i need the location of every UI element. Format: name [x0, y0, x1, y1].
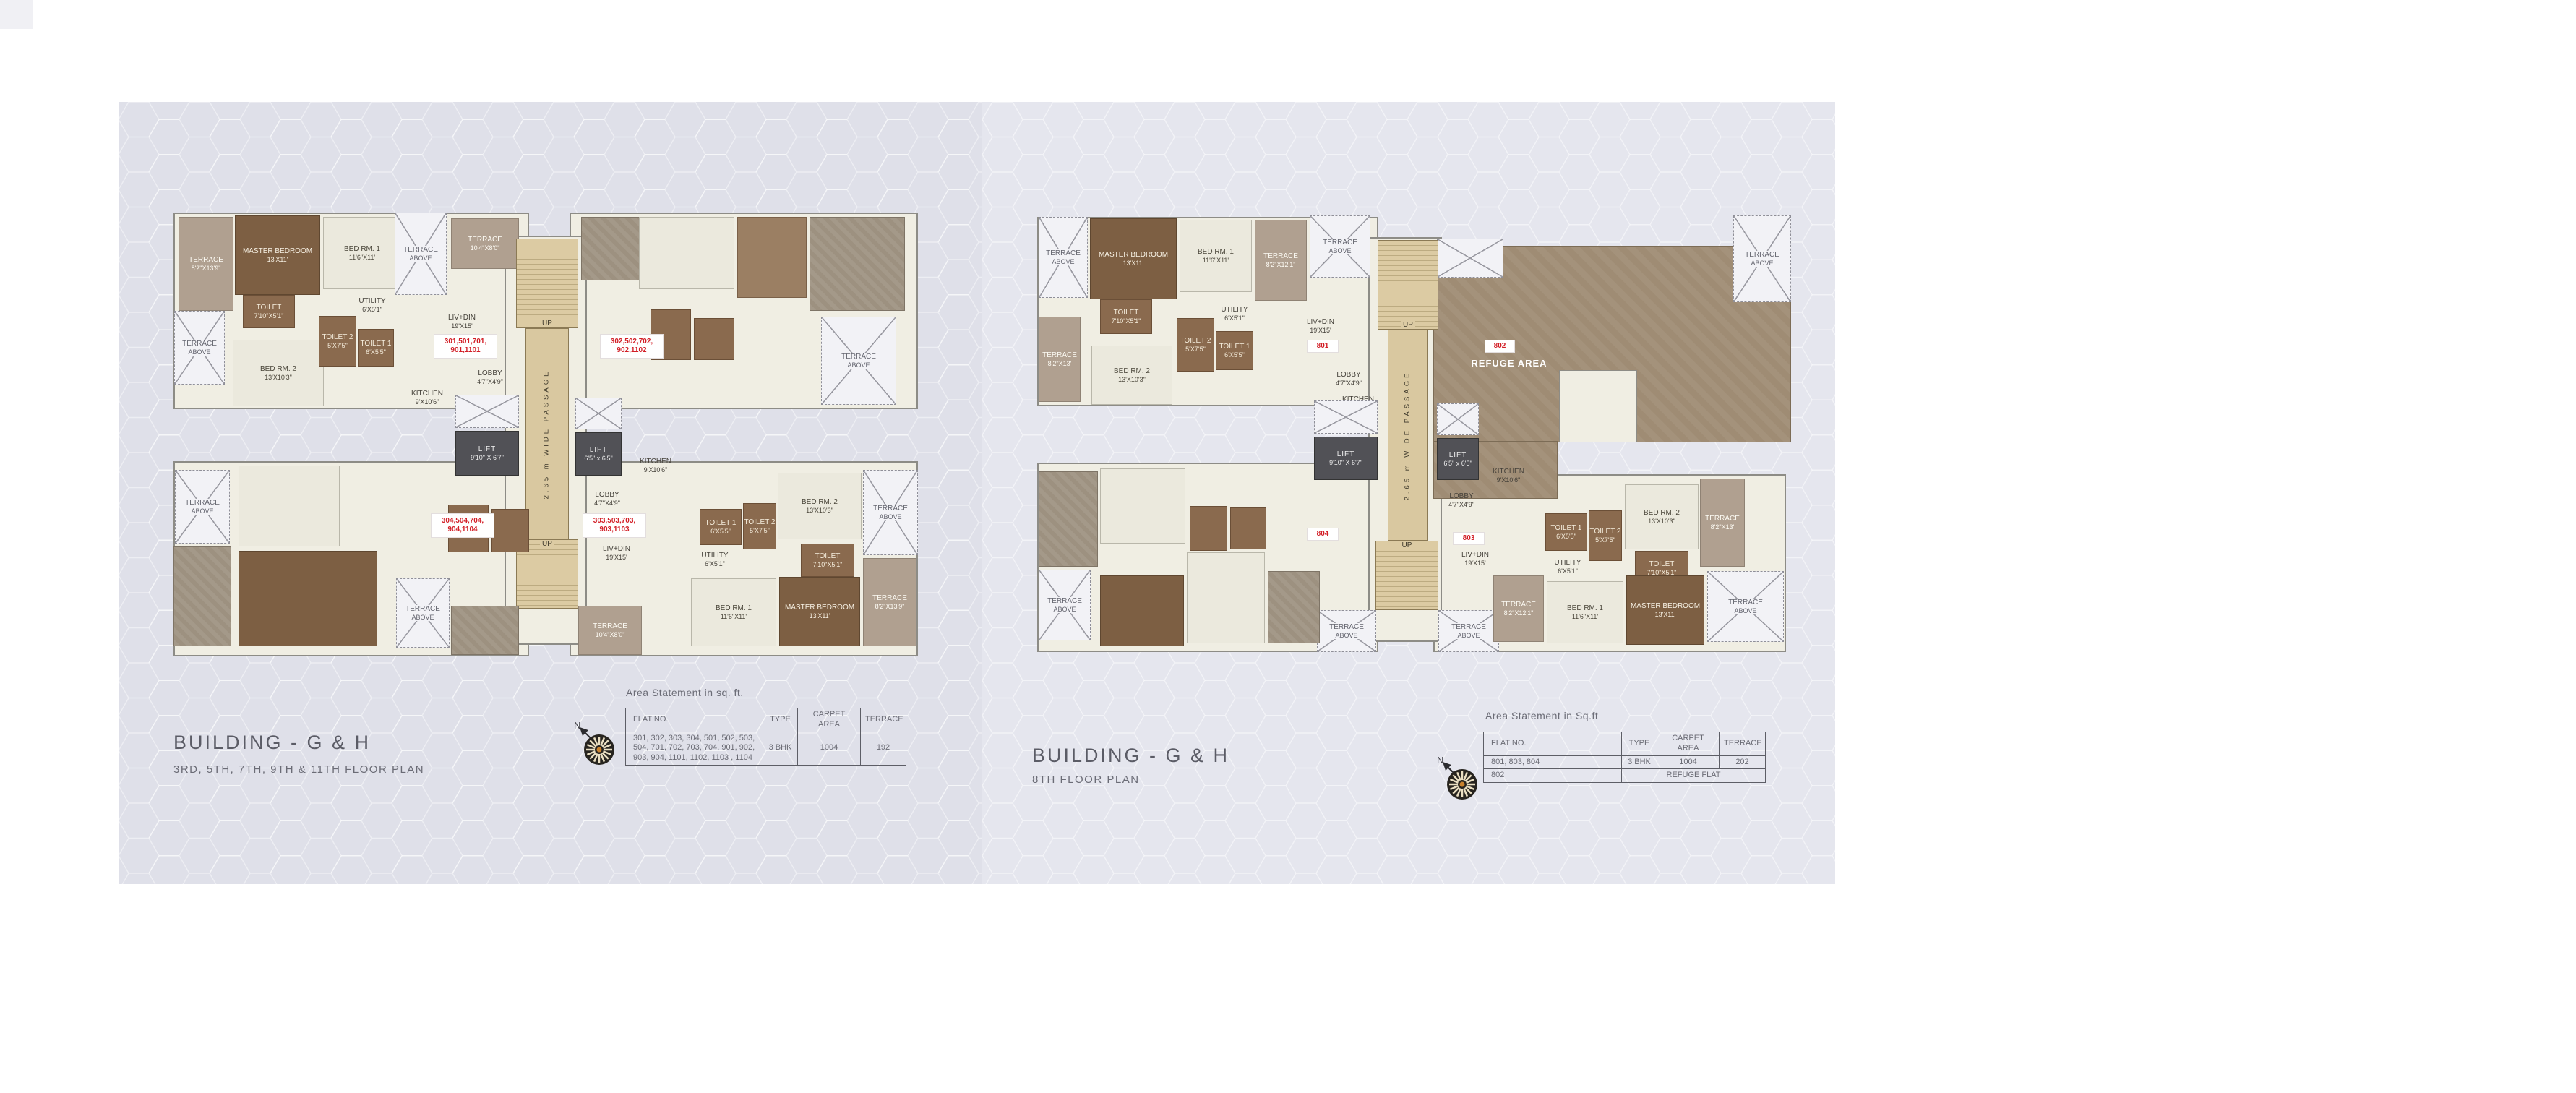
room-text: ABOVE	[1749, 260, 1774, 267]
room-text: UTILITY	[1221, 306, 1248, 314]
toilet: TOILET 16'X5'5"	[700, 509, 742, 545]
room-text: 11'6"X11'	[349, 254, 375, 261]
bedroom	[737, 217, 807, 298]
table-cell: 3 BHK	[1622, 755, 1657, 769]
room-text: 4'7"X4'9"	[1448, 501, 1474, 508]
terrace: TERRACE8'2"X13'	[1700, 479, 1745, 567]
room-text: 13'X11'	[267, 256, 288, 263]
room-text: ABOVE	[1327, 247, 1352, 254]
flat-number-label: 302,502,702,902,1102	[600, 334, 664, 359]
room-text: BED RM. 2	[1644, 509, 1680, 518]
refuge-area-label: REFUGE AREA	[1459, 356, 1560, 372]
room-text: TERRACE	[184, 499, 221, 507]
flat-number-label: 303,503,703,903,1103	[583, 513, 646, 538]
room: BED RM. 213'X10'3"	[233, 340, 324, 406]
room-text: 19'X15'	[1310, 327, 1331, 334]
room-text: TOILET 1	[1219, 343, 1250, 351]
room: BED RM. 111'6"X11'	[323, 217, 401, 289]
lift: LIFT6'5" x 6'5"	[1437, 438, 1479, 480]
room-text: TERRACE	[189, 256, 223, 265]
room-text: 6'X5'1"	[705, 560, 725, 567]
room: BED RM. 213'X10'3"	[1625, 484, 1699, 549]
room-label: KITCHEN9'X10'6"	[1486, 464, 1531, 487]
room-text: TERRACE	[1321, 239, 1359, 247]
terrace	[1268, 571, 1320, 643]
room-label: UTILITY6'X5'1"	[1545, 555, 1590, 578]
terrace	[581, 217, 640, 280]
room-text: 8'2"X13'	[1711, 523, 1735, 531]
terrace-above-marker: TERRACEABOVE	[1707, 571, 1784, 642]
top-left-corner-patch	[0, 0, 33, 29]
table-header: TYPE	[763, 708, 798, 732]
room-text: KITCHEN	[640, 458, 671, 466]
terrace-above-marker: TERRACEABOVE	[821, 317, 896, 405]
room-text: 302,502,702,	[611, 338, 653, 347]
terrace-above-marker: TERRACEABOVE	[1310, 215, 1370, 278]
bedroom	[239, 551, 377, 646]
room-text: TOILET 1	[705, 519, 737, 528]
room-text: TOILET 2	[1590, 528, 1621, 536]
toilet: TOILET 25'X7'5"	[1589, 510, 1622, 561]
room-text: REFUGE AREA	[1471, 359, 1547, 369]
building-title-right: BUILDING - G & H	[1032, 745, 1229, 767]
room-text: MASTER BEDROOM	[1631, 602, 1700, 611]
room-text: 9'X10'6"	[416, 398, 439, 406]
terrace	[810, 217, 905, 311]
room-label: UTILITY6'X5'1"	[1211, 302, 1258, 325]
terrace-above-marker	[575, 398, 622, 429]
room-text: 10'4"X8'0"	[596, 631, 625, 638]
compass-north-label: N	[574, 720, 580, 731]
room-text: 8'2"X13'	[1048, 360, 1072, 367]
room-text: TERRACE	[1727, 599, 1764, 607]
room: BED RM. 213'X10'3"	[778, 473, 862, 539]
area-statement-caption-right: Area Statement in Sq.ft	[1485, 710, 1598, 721]
terrace: TERRACE8'2"X12'1"	[1493, 575, 1544, 642]
room: BED RM. 111'6"X11'	[1547, 581, 1623, 643]
toilet: TOILET 25'X7'5"	[1177, 318, 1214, 372]
table-cell: REFUGE FLAT	[1622, 769, 1766, 783]
table-header: TERRACE	[861, 708, 906, 732]
table-row: 801, 803, 8043 BHK1004202	[1484, 755, 1766, 769]
table-row: 301, 302, 303, 304, 501, 502, 503, 504, …	[626, 732, 906, 765]
room-text: LOBBY	[478, 369, 502, 378]
toilet: TOILET 25'X7'5"	[319, 316, 356, 367]
room: BED RM. 111'6"X11'	[1180, 220, 1252, 292]
room-text: 6'5" x 6'5"	[584, 455, 612, 462]
terrace: TERRACE10'4"X8'0"	[451, 218, 519, 269]
room-text: 6'X5'5"	[1556, 533, 1576, 540]
room-text: 6'X5'5"	[710, 528, 731, 535]
room	[1187, 552, 1265, 643]
table-cell: 801, 803, 804	[1484, 755, 1622, 769]
room-text: BED RM. 2	[802, 498, 838, 507]
terrace	[1039, 471, 1098, 567]
room-text: BED RM. 1	[344, 245, 380, 254]
flat-number-label: 804	[1307, 528, 1339, 541]
staircase: UP	[1378, 240, 1438, 330]
toilet: TOILET 16'X5'5"	[1545, 513, 1587, 551]
terrace: TERRACE8'2"X13'9"	[179, 217, 233, 311]
lift: LIFT9'10" X 6'7"	[1314, 437, 1378, 480]
table-header: TERRACE	[1720, 732, 1766, 756]
flat-number-label: 301,501,701,901,1101	[434, 334, 497, 359]
floor-subtitle-right: 8TH FLOOR PLAN	[1032, 773, 1140, 786]
room: BED RM. 111'6"X11'	[691, 578, 776, 646]
flat-number-label: 801	[1307, 340, 1339, 353]
room-label: LOBBY4'7"X4'9"	[587, 489, 627, 509]
room-text: TOILET	[1114, 309, 1139, 317]
room-text: BED RM. 1	[1198, 248, 1234, 257]
room-text: LIV+DIN	[1307, 318, 1334, 327]
room-text: 6'X5'1"	[362, 306, 382, 313]
staircase: UP	[1375, 541, 1438, 610]
room-text: LIFT	[1337, 450, 1355, 459]
bedroom	[1100, 575, 1184, 646]
toilet: TOILET 16'X5'5"	[358, 329, 394, 367]
room-label: LIV+DIN19'X15'	[594, 542, 639, 564]
passage: 2.65 m WIDE PASSAGE	[1388, 330, 1428, 541]
room-text: 902,1102	[617, 346, 646, 356]
room-text: 10'4"X8'0"	[471, 244, 500, 252]
room-text: 19'X15'	[606, 554, 627, 561]
compass-icon: N	[1435, 752, 1483, 804]
room-text: 6'X5'5"	[366, 348, 386, 356]
room-text: 2.65 m WIDE PASSAGE	[1404, 370, 1412, 500]
bedroom: MASTER BEDROOM13'X11'	[235, 215, 320, 295]
room-text: MASTER BEDROOM	[785, 604, 854, 612]
toilet	[1230, 507, 1266, 549]
room-text: LIFT	[590, 446, 608, 455]
room-label: KITCHEN9'X10'6"	[405, 386, 450, 409]
room	[239, 466, 340, 546]
terrace-above-marker: TERRACEABOVE	[1039, 217, 1088, 298]
room-text: 5'X7'5"	[1595, 536, 1615, 544]
area-statement-table-left: FLAT NO.TYPECARPET AREATERRACE301, 302, …	[625, 708, 906, 766]
room-text: 5'X7'5"	[750, 527, 770, 534]
room-text: 7'10"X5'1"	[813, 561, 843, 568]
toilet: TOILET7'10"X5'1"	[1100, 299, 1152, 334]
terrace: TERRACE8'2"X12'1"	[1255, 220, 1307, 301]
table-cell: 802	[1484, 769, 1622, 783]
room-text: TERRACE	[468, 236, 502, 244]
area-statement-table-right: FLAT NO.TYPECARPET AREATERRACE801, 803, …	[1483, 732, 1766, 783]
room-text: ABOVE	[186, 348, 212, 356]
terrace-above-marker	[1437, 239, 1503, 278]
room-text: 904,1104	[447, 526, 477, 535]
room-text: TERRACE	[1263, 252, 1298, 261]
toilet: TOILET7'10"X5'1"	[243, 295, 295, 328]
room-text: TOILET 1	[1551, 524, 1582, 533]
table-header: TYPE	[1622, 732, 1657, 756]
room-text: ABOVE	[1334, 632, 1359, 639]
room-text: 9'X10'6"	[644, 466, 668, 473]
toilet	[1190, 506, 1227, 551]
room-text: ABOVE	[408, 254, 433, 262]
room-text: TERRACE	[1046, 597, 1083, 606]
room-text: TOILET	[815, 552, 841, 561]
room-text: UP	[1400, 541, 1414, 550]
room-text: 13'X10'3"	[1118, 376, 1146, 383]
building-title-left: BUILDING - G & H	[173, 732, 371, 754]
room-text: 9'X10'6"	[1497, 476, 1521, 484]
room-text: 6'X5'1"	[1224, 314, 1245, 322]
room-text: 4'7"X4'9"	[477, 378, 503, 385]
room-text: 13'X10'3"	[1648, 518, 1675, 525]
room-label: UTILITY6'X5'1"	[348, 293, 396, 317]
room: BED RM. 213'X10'3"	[1091, 346, 1172, 405]
room-text: LIV+DIN	[603, 545, 630, 554]
terrace-above-marker: TERRACEABOVE	[395, 213, 447, 295]
room-text: 7'10"X5'1"	[254, 312, 284, 320]
room-text: 301,501,701,	[445, 338, 486, 347]
room-text: KITCHEN	[1493, 468, 1524, 476]
flat-number-label: 304,504,704,904,1104	[431, 513, 494, 538]
room-text: TOILET	[257, 304, 282, 312]
room-text: LOBBY	[595, 491, 619, 500]
room-text: 11'6"X11'	[1572, 613, 1598, 620]
terrace-above-marker	[1437, 403, 1479, 435]
room-text: 11'6"X11'	[721, 613, 747, 620]
room-text: TERRACE	[1328, 623, 1365, 632]
toilet: TOILET 16'X5'5"	[1216, 331, 1253, 370]
terrace-above-marker: TERRACEABOVE	[1039, 570, 1091, 640]
room-label: LIV+DIN19'X15'	[439, 311, 484, 333]
room-text: 6'5" x 6'5"	[1443, 460, 1472, 467]
toilet	[491, 509, 529, 552]
bedroom: MASTER BEDROOM13'X11'	[1626, 575, 1704, 645]
room-text: TERRACE	[593, 622, 627, 631]
table-row: 802REFUGE FLAT	[1484, 769, 1766, 783]
room-text: ABOVE	[1052, 606, 1077, 613]
room-text: 802	[1494, 342, 1506, 351]
room-text: TERRACE	[872, 505, 909, 513]
room-text: TERRACE	[1450, 623, 1487, 632]
compass-icon: N	[572, 717, 620, 769]
room-text: UP	[1401, 321, 1415, 330]
room-text: ABOVE	[877, 513, 903, 520]
room-text: TERRACE	[840, 353, 877, 361]
lift: LIFT6'5" x 6'5"	[575, 432, 622, 476]
room-label: KITCHEN9'X10'6"	[633, 454, 678, 477]
flat-number-label: 803	[1453, 532, 1485, 545]
room-text: 803	[1463, 534, 1475, 544]
room-text: 19'X15'	[1464, 560, 1485, 567]
terrace-above-marker: TERRACEABOVE	[1317, 610, 1376, 652]
terrace-above-marker: TERRACEABOVE	[174, 311, 225, 385]
room-text: MASTER BEDROOM	[1099, 251, 1168, 260]
room-text: 6'X5'1"	[1558, 567, 1578, 575]
room-text: BED RM. 1	[1567, 604, 1603, 613]
room-text: 2.65 m WIDE PASSAGE	[544, 369, 551, 499]
table-header: CARPET AREA	[1657, 732, 1720, 756]
table-cell: 1004	[798, 732, 861, 765]
room-text: TERRACE	[872, 594, 907, 603]
terrace-above-marker: TERRACEABOVE	[1438, 610, 1499, 652]
room-text: ABOVE	[1050, 258, 1076, 265]
terrace: TERRACE8'2"X13'9"	[863, 558, 916, 646]
toilet	[694, 318, 734, 360]
room-text: UTILITY	[1554, 559, 1581, 567]
passage: 2.65 m WIDE PASSAGE	[525, 328, 569, 539]
terrace: TERRACE8'2"X13'	[1039, 317, 1081, 402]
toilet: TOILET 25'X7'5"	[743, 503, 776, 549]
room-text: 13'X10'3"	[265, 374, 292, 381]
room-text: BED RM. 2	[1114, 367, 1150, 376]
room-text: ABOVE	[846, 361, 871, 369]
room-text: 13'X11'	[810, 612, 830, 620]
room-text: UTILITY	[701, 552, 728, 560]
compass-north-label: N	[1437, 755, 1443, 766]
room-text: TOILET	[1649, 560, 1675, 569]
terrace	[451, 606, 519, 655]
room-label: LIV+DIN19'X15'	[1453, 548, 1498, 570]
table-cell: 1004	[1657, 755, 1720, 769]
terrace-above-marker: TERRACEABOVE	[863, 470, 918, 555]
room-text: 9'10" X 6'7"	[1329, 459, 1362, 466]
room-text: TERRACE	[1501, 601, 1536, 609]
room-text: 13'X11'	[1123, 260, 1144, 267]
flat-number-label: 802	[1485, 340, 1515, 353]
room-text: TERRACE	[1743, 251, 1781, 260]
room-text: BED RM. 1	[716, 604, 752, 613]
room-text: 4'7"X4'9"	[1336, 380, 1362, 387]
room-text: 8'2"X12'1"	[1266, 261, 1296, 268]
room-text: TERRACE	[1044, 249, 1082, 258]
terrace: TERRACE10'4"X8'0"	[578, 606, 642, 655]
refuge-cutout	[1559, 370, 1637, 442]
table-header: CARPET AREA	[798, 708, 861, 732]
room-text: 7'10"X5'1"	[1112, 317, 1141, 325]
room-text: UP	[540, 540, 554, 549]
room-text: LOBBY	[1336, 371, 1360, 380]
room-text: 19'X15'	[451, 322, 472, 330]
bedroom: MASTER BEDROOM13'X11'	[779, 577, 860, 646]
toilet: TOILET7'10"X5'1"	[801, 544, 854, 577]
room-text: 303,503,703,	[593, 517, 635, 526]
room-text: LOBBY	[1449, 492, 1473, 501]
room-text: LIV+DIN	[1461, 551, 1489, 560]
room-text: 901,1101	[450, 346, 480, 356]
room-label: LOBBY4'7"X4'9"	[470, 367, 510, 387]
room-text: KITCHEN	[411, 390, 443, 398]
room-text: BED RM. 2	[260, 365, 296, 374]
room-text: 8'2"X13'9"	[192, 265, 221, 272]
room-text: TERRACE	[404, 605, 442, 614]
table-header: FLAT NO.	[1484, 732, 1622, 756]
room-text: ABOVE	[410, 614, 435, 621]
terrace-above-marker: TERRACEABOVE	[396, 578, 450, 648]
terrace-above-marker: TERRACEABOVE	[1733, 215, 1791, 302]
room-text: ABOVE	[189, 507, 215, 515]
room-text: ABOVE	[1456, 632, 1481, 639]
room-text: 9'10" X 6'7"	[471, 454, 504, 461]
area-statement-caption-left: Area Statement in sq. ft.	[626, 687, 744, 698]
room-text: 13'X10'3"	[806, 507, 833, 514]
room-label: LOBBY4'7"X4'9"	[1441, 490, 1482, 510]
room-text: 11'6"X11'	[1203, 257, 1229, 264]
room-text: 4'7"X4'9"	[594, 500, 620, 507]
room-text: LIFT	[1449, 451, 1467, 460]
terrace-above-marker	[1314, 400, 1378, 434]
room-text: TERRACE	[402, 246, 439, 254]
room-text: ABOVE	[1733, 607, 1758, 614]
room-label: UTILITY6'X5'1"	[692, 548, 737, 571]
room-text: TERRACE	[181, 340, 218, 348]
room-text: 13'X11'	[1655, 611, 1676, 618]
room-text: 5'X7'5"	[327, 342, 348, 349]
staircase: UP	[516, 239, 578, 328]
room-text: 304,504,704,	[442, 517, 484, 526]
room-text: 903,1103	[599, 526, 629, 535]
terrace-above-marker: TERRACEABOVE	[175, 470, 230, 544]
room-text: LIV+DIN	[448, 314, 476, 322]
room	[1100, 468, 1185, 544]
terrace	[173, 546, 231, 646]
terrace-above-marker	[455, 395, 519, 428]
room-text: 5'X7'5"	[1185, 346, 1206, 353]
room-text: 8'2"X12'1"	[1504, 609, 1534, 617]
room-text: TOILET 1	[361, 340, 392, 348]
room-text: TERRACE	[1042, 351, 1077, 360]
table-cell: 3 BHK	[763, 732, 798, 765]
room-text: 8'2"X13'9"	[875, 603, 905, 610]
room-text: 804	[1317, 530, 1329, 539]
table-cell: 192	[861, 732, 906, 765]
room-text: LIFT	[478, 445, 497, 454]
room-label: LIV+DIN19'X15'	[1298, 315, 1343, 337]
room-text: TERRACE	[1705, 515, 1740, 523]
room-text: 6'X5'5"	[1224, 351, 1245, 359]
lift: LIFT9'10" X 6'7"	[455, 431, 519, 476]
room-text: UP	[540, 320, 554, 328]
room	[639, 217, 734, 289]
room-label: LOBBY4'7"X4'9"	[1328, 369, 1369, 389]
room-text: TOILET 2	[1180, 337, 1211, 346]
room-text: 801	[1317, 342, 1329, 351]
floor-subtitle-left: 3RD, 5TH, 7TH, 9TH & 11TH FLOOR PLAN	[173, 763, 424, 776]
table-cell: 301, 302, 303, 304, 501, 502, 503, 504, …	[626, 732, 763, 765]
room-text: MASTER BEDROOM	[243, 247, 312, 256]
table-header: FLAT NO.	[626, 708, 763, 732]
table-cell: 202	[1720, 755, 1766, 769]
room-text: UTILITY	[359, 297, 385, 306]
room-text: TOILET 2	[322, 333, 353, 342]
room-text: TOILET 2	[744, 518, 776, 527]
page: { "compass_n": "N", "panels": { "left": …	[0, 0, 2576, 1093]
bedroom: MASTER BEDROOM13'X11'	[1090, 218, 1177, 299]
